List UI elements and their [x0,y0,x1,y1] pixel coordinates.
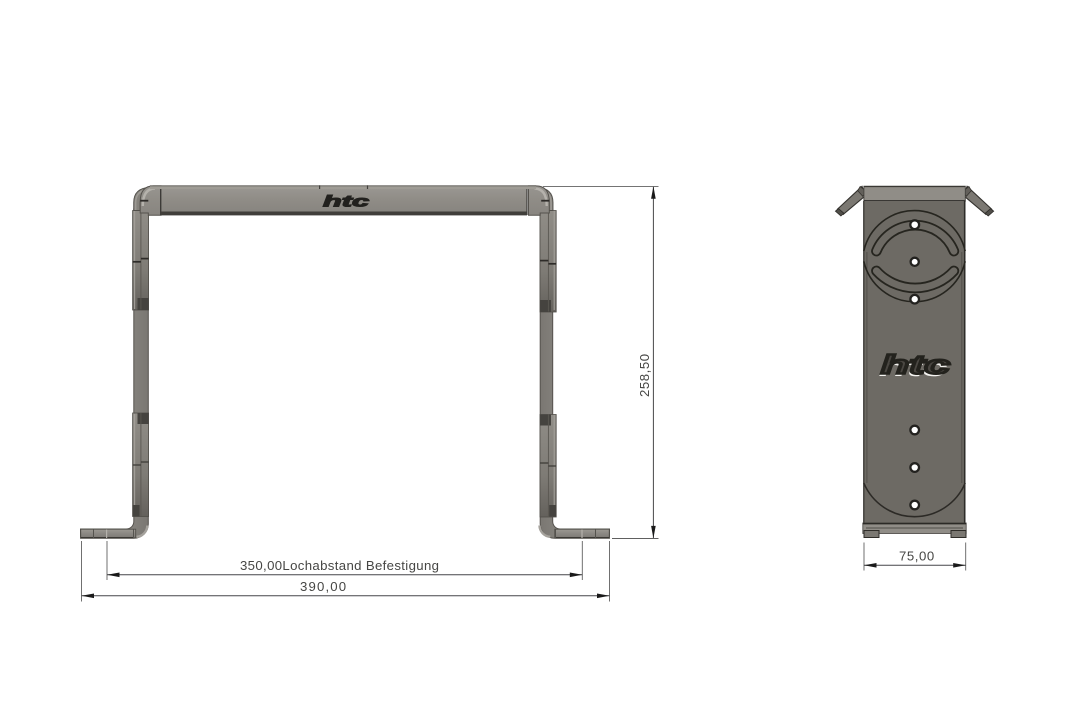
svg-text:htc: htc [881,350,951,380]
svg-text:390,00: 390,00 [300,579,347,594]
svg-text:75,00: 75,00 [899,549,935,564]
svg-text:htc: htc [323,194,369,211]
svg-text:350,00Lochabstand Befestigung: 350,00Lochabstand Befestigung [240,558,439,573]
svg-text:258,50: 258,50 [637,353,652,397]
